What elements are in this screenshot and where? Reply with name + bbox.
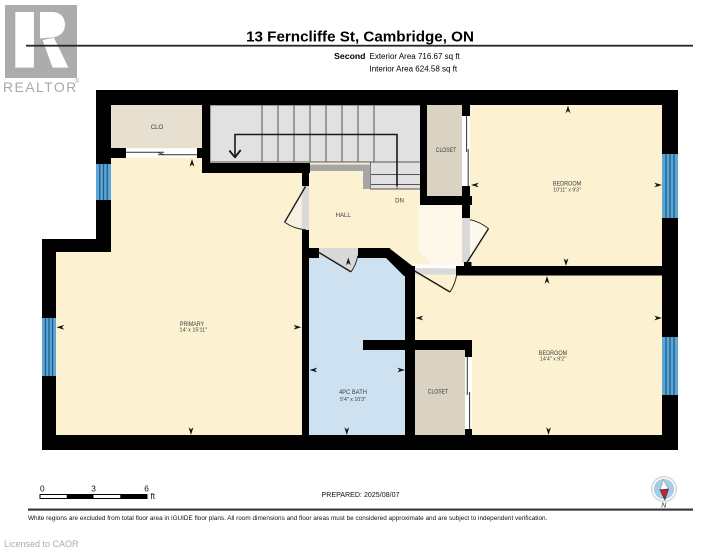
svg-text:0: 0 bbox=[40, 484, 45, 494]
svg-text:14'4" x 9'2": 14'4" x 9'2" bbox=[540, 357, 566, 363]
svg-text:Second: Second bbox=[334, 51, 365, 61]
svg-text:DN: DN bbox=[395, 197, 404, 204]
svg-text:CLO: CLO bbox=[151, 124, 164, 131]
svg-text:5'4" x 10'3": 5'4" x 10'3" bbox=[340, 397, 366, 403]
svg-text:14' x 15'11": 14' x 15'11" bbox=[180, 328, 208, 334]
svg-text:13 Ferncliffe St, Cambridge, O: 13 Ferncliffe St, Cambridge, ON bbox=[246, 29, 474, 46]
svg-text:HALL: HALL bbox=[336, 212, 352, 219]
svg-text:BEDROOM: BEDROOM bbox=[553, 180, 581, 187]
svg-text:®: ® bbox=[75, 77, 80, 85]
svg-text:Exterior Area 716.67 sq ft: Exterior Area 716.67 sq ft bbox=[370, 52, 461, 61]
svg-text:3: 3 bbox=[91, 484, 96, 494]
svg-text:10'11" x 9'3": 10'11" x 9'3" bbox=[553, 188, 581, 194]
svg-text:PREPARED: 2025/08/07: PREPARED: 2025/08/07 bbox=[322, 491, 400, 499]
svg-text:CLOSET: CLOSET bbox=[428, 389, 449, 396]
svg-text:CLOSET: CLOSET bbox=[436, 147, 457, 154]
svg-text:White regions are excluded fro: White regions are excluded from total fl… bbox=[28, 515, 548, 522]
svg-text:REALTOR: REALTOR bbox=[3, 79, 78, 95]
svg-text:Interior Area 624.58 sq ft: Interior Area 624.58 sq ft bbox=[370, 64, 458, 73]
svg-text:Licensed to CAOR: Licensed to CAOR bbox=[4, 539, 79, 549]
svg-text:6: 6 bbox=[144, 484, 149, 494]
svg-text:ft: ft bbox=[151, 491, 156, 501]
svg-text:4PC BATH: 4PC BATH bbox=[339, 389, 367, 396]
